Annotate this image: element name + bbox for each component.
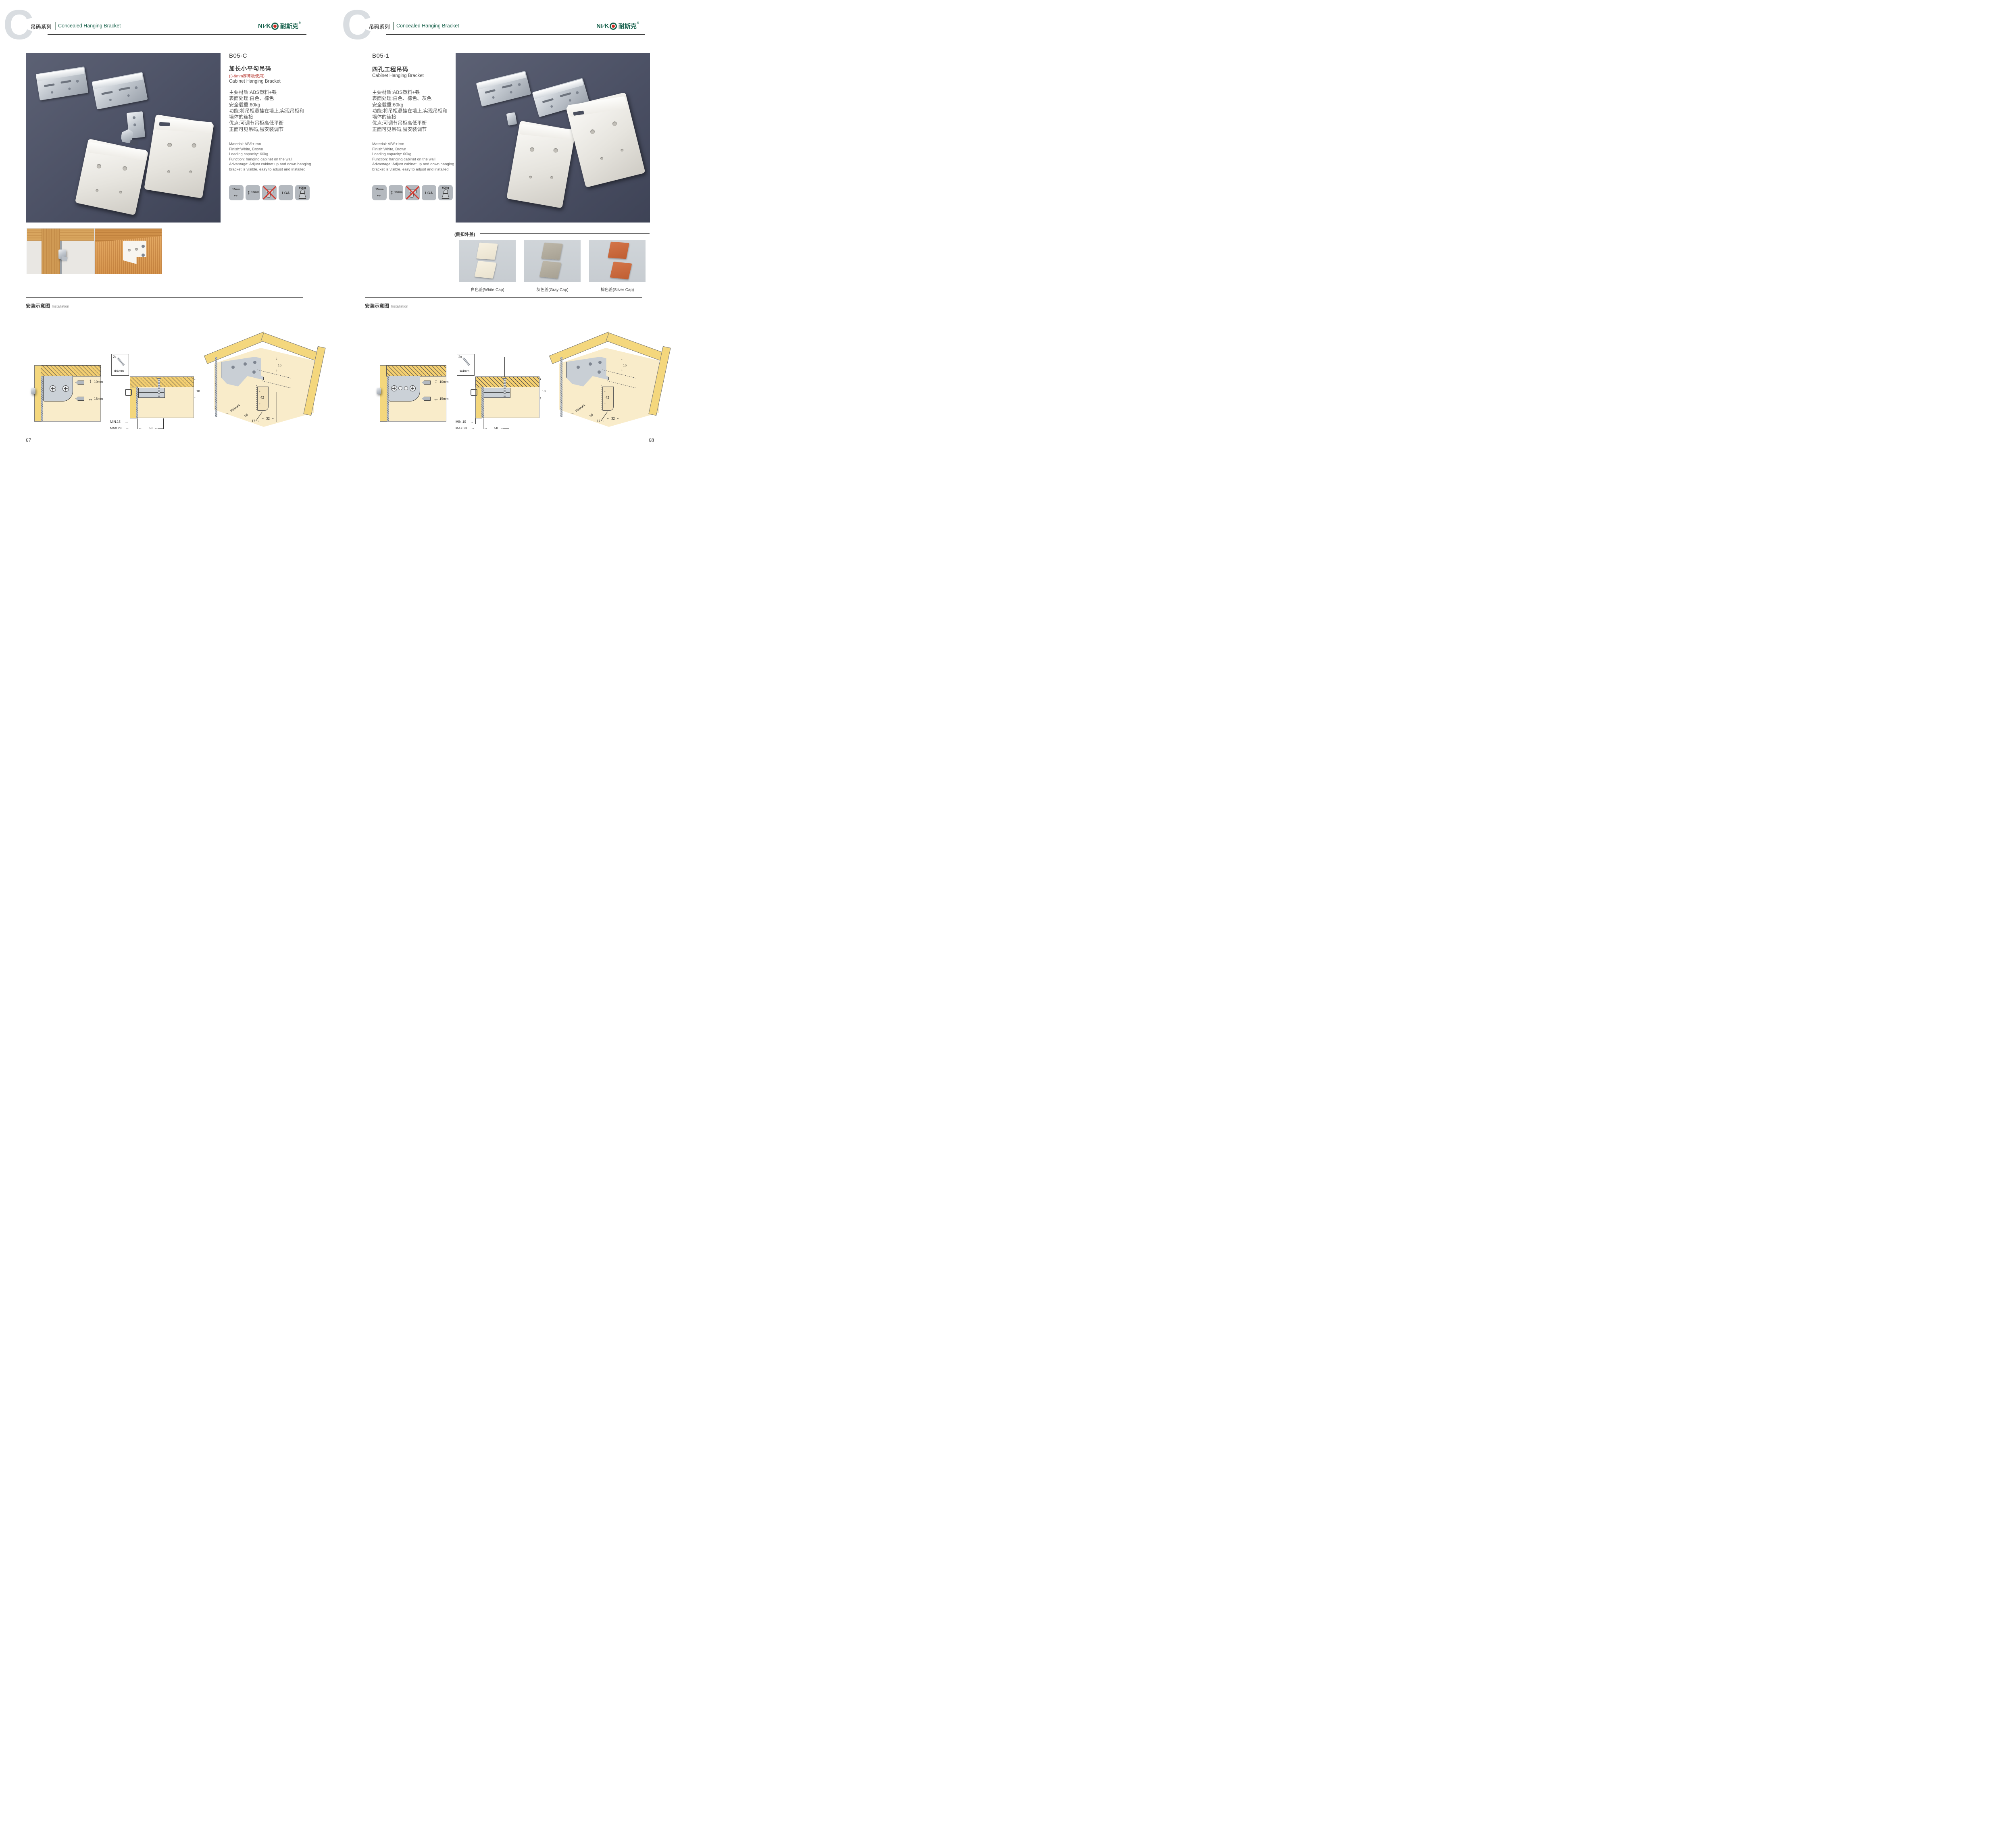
dim-label: 18 <box>196 390 200 393</box>
dim-label: 18 <box>542 390 546 393</box>
installation-rule <box>26 297 303 298</box>
diagram-perspective: ↓ 16 ↑ ↓ 42 ↑ RMAX4 → 16 17 → ← 32 ← <box>205 332 321 428</box>
series-title-en: Concealed Hanging Bracket <box>396 23 459 29</box>
logo-text-k: K <box>605 23 609 29</box>
dim-label: 58 <box>494 427 498 430</box>
watermark-letter: C <box>3 4 33 46</box>
dim-label: 16 <box>278 364 281 367</box>
dim-label: 42 <box>606 396 609 399</box>
brand-logo: NI∕K 耐斯克 ® <box>596 22 639 30</box>
width-icon-label: 15mm <box>232 188 240 191</box>
logo-text-ni: NI <box>596 23 603 29</box>
metal-plate <box>92 72 148 109</box>
product-name-en: Cabinet Hanging Bracket <box>372 73 424 78</box>
logo-o-icon <box>610 23 617 30</box>
installation-title: 安装示意图 Installation <box>365 302 408 310</box>
caps-section-rule <box>480 233 650 234</box>
height-icon: ↕ 10mm <box>246 185 260 200</box>
install-photo-bracket <box>95 229 162 274</box>
plastic-bracket-block <box>144 114 214 199</box>
product-name-cn: 四孔工程吊码 <box>372 65 408 73</box>
installation-title-cn: 安装示意图 <box>365 303 389 309</box>
screw-dia: Φ4mm <box>460 370 469 373</box>
metal-plate <box>36 67 89 100</box>
load-icon: 60Kg <box>438 185 453 200</box>
plastic-bracket-block <box>75 139 148 215</box>
catalog-spread: C 吊码系列 Concealed Hanging Bracket NI∕K 耐斯… <box>0 0 676 462</box>
diagram-perspective: ↓ 16 ↑ ↓ 42 ↑ RMAX4 → 16 17 → ← 32 ← <box>550 332 666 428</box>
series-title-cn: 吊码系列 <box>369 23 390 30</box>
cert-icon-label: LGA <box>422 191 436 195</box>
product-name-cn: 加长小平勾吊码 <box>229 64 271 73</box>
page-68: C 吊码系列 Concealed Hanging Bracket NI∕K 耐斯… <box>338 0 676 462</box>
diagram-front-section: 2x Φ4mm ↓ 18 ↑ MIN.15 → MAX.28 → ↔ <box>109 345 206 430</box>
no-drill-icon <box>405 185 420 200</box>
install-photo-hook <box>27 229 94 274</box>
screw-qty: 2x <box>113 356 116 359</box>
dim-label: 16 <box>623 364 627 367</box>
cap-photo-white <box>459 240 516 282</box>
metal-hook <box>506 112 517 125</box>
logo-text-k: K <box>267 23 271 29</box>
series-title-en: Concealed Hanging Bracket <box>58 23 121 29</box>
dim-label: MIN.10 <box>456 420 466 424</box>
product-code: B05-C <box>229 52 247 59</box>
dim-label: 17 <box>252 420 255 423</box>
cap-label: 灰色盖(Gray Cap) <box>524 286 581 292</box>
dim-label: 58 <box>149 427 152 430</box>
page-number: 68 <box>649 437 654 443</box>
metal-plate <box>476 71 531 107</box>
cert-icon: LGA <box>279 185 293 200</box>
width-icon: 15mm ↔ <box>372 185 387 200</box>
height-icon: ↕ 10mm <box>389 185 403 200</box>
brand-logo: NI∕K 耐斯克 ® <box>258 22 301 30</box>
cap-photo-brown <box>589 240 646 282</box>
caps-section-label: (侧扣外盖) <box>454 231 475 237</box>
page-number: 67 <box>26 437 31 443</box>
dim-label: 42 <box>260 396 264 399</box>
header-rule <box>48 34 306 35</box>
hook-profile <box>31 388 35 394</box>
dim-label: 15mm <box>439 397 448 401</box>
logo-text-cn: 耐斯克 <box>280 22 298 30</box>
dim-label: MIN.15 <box>110 420 121 424</box>
load-icon-label: 60Kg <box>438 187 453 189</box>
hook-profile <box>377 388 381 394</box>
plastic-bracket-block <box>566 92 645 188</box>
header-divider <box>393 22 394 30</box>
screw-dia: Φ4mm <box>114 370 124 373</box>
specs-cn: 主要材质:ABS塑料+铁 表面处理:白色、棕色 安全载重:60kg 功能:将吊柜… <box>229 89 326 133</box>
registered-mark: ® <box>299 22 301 25</box>
installation-title-en: Installation <box>52 304 69 308</box>
installation-title-cn: 安装示意图 <box>26 303 50 309</box>
header-divider <box>55 22 56 30</box>
dim-label: 32 <box>266 417 270 420</box>
width-icon-label: 15mm <box>375 188 383 191</box>
load-icon: 60Kg <box>295 185 310 200</box>
specs-en: Material: ABS+Iron Finish:White, Brown L… <box>229 142 326 172</box>
logo-text-ni: NI <box>258 23 264 29</box>
page-67: C 吊码系列 Concealed Hanging Bracket NI∕K 耐斯… <box>0 0 338 462</box>
hook-clip <box>130 140 138 146</box>
product-photo <box>456 53 650 223</box>
product-note-red: (3-9mm厚背板使用) <box>229 73 264 79</box>
height-icon-label: 10mm <box>251 191 259 194</box>
logo-text-cn: 耐斯克 <box>619 22 637 30</box>
load-icon-label: 60Kg <box>295 187 310 189</box>
no-drill-icon <box>262 185 277 200</box>
diagram-front-section: 2x Φ4mm ↓ 18 ↑ MIN.10 → MAX.23 → ↔ <box>455 345 552 430</box>
cert-icon: LGA <box>422 185 436 200</box>
installation-rule <box>365 297 642 298</box>
product-name-en: Cabinet Hanging Bracket <box>229 79 281 84</box>
product-photo <box>26 53 221 223</box>
dim-label: MAX.23 <box>456 427 467 430</box>
registered-mark: ® <box>637 22 639 25</box>
specs-en: Material: ABS+Iron Finish:White, Brown L… <box>372 142 469 172</box>
series-title-cn: 吊码系列 <box>31 23 52 30</box>
cert-icon-label: LGA <box>279 191 293 195</box>
cap-photo-gray <box>524 240 581 282</box>
installation-title-en: Installation <box>391 304 408 308</box>
dim-label: 15mm <box>94 397 103 401</box>
installation-title: 安装示意图 Installation <box>26 302 69 310</box>
header-rule <box>386 34 645 35</box>
width-icon: 15mm ↔ <box>229 185 244 200</box>
diagram-side-section: ↕ 10mm ↔ 15mm <box>376 362 454 422</box>
dim-label: MAX.28 <box>110 427 121 430</box>
screw-qty: 2x <box>458 356 462 359</box>
specs-cn: 主要材质:ABS塑料+铁 表面处理:白色、棕色、灰色 安全载重:60kg 功能:… <box>372 89 469 133</box>
diagram-side-section: ↕ 10mm ↔ 15mm <box>30 362 109 422</box>
cap-label: 白色盖(White Cap) <box>459 286 516 292</box>
logo-o-icon <box>271 23 279 30</box>
dim-label: 10mm <box>94 381 103 384</box>
cap-label: 棕色盖(Silver Cap) <box>589 286 646 292</box>
dim-label: 10mm <box>439 381 448 384</box>
product-code: B05-1 <box>372 52 389 59</box>
height-icon-label: 10mm <box>394 191 402 194</box>
dim-label: 32 <box>611 417 615 420</box>
dim-label: 17 <box>597 420 600 423</box>
plastic-bracket-block <box>506 121 576 208</box>
watermark-letter: C <box>342 4 372 46</box>
